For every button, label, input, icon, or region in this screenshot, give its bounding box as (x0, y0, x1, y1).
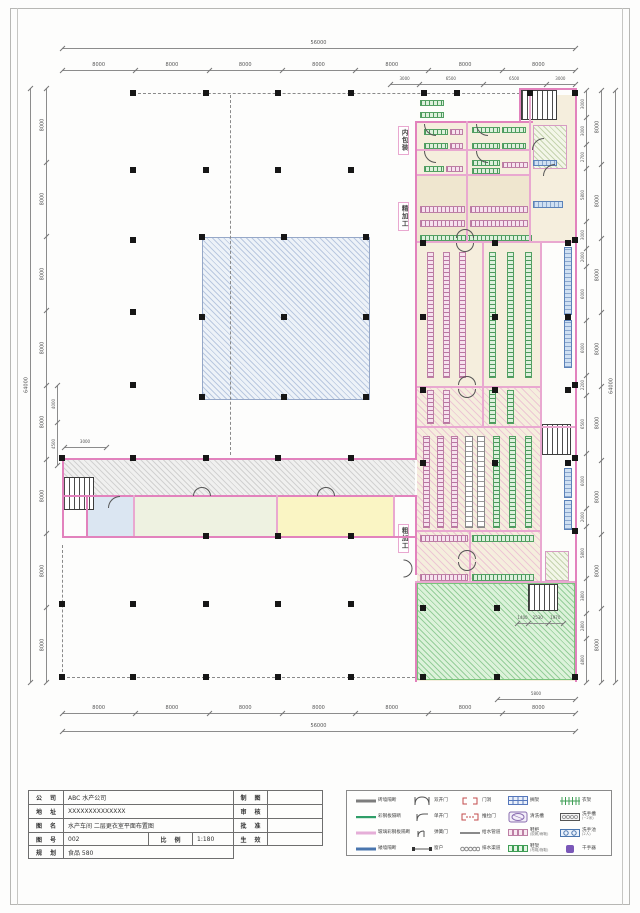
wall (519, 88, 521, 123)
door-leaf (456, 243, 465, 252)
column-marker (363, 394, 369, 400)
dimension-label: 4500 (52, 439, 56, 449)
sliding-door-icon (459, 811, 480, 822)
column-marker (572, 382, 578, 388)
door-double-swing (193, 487, 211, 496)
troughV (564, 247, 572, 315)
legend-label: 玻璃彩钢板隔断 (378, 830, 410, 836)
column-marker (420, 387, 426, 393)
legend-text: 鞋柜(胶靴/雨靴) (530, 828, 548, 837)
column-marker (275, 455, 281, 461)
shoe-cabinet-icon (507, 827, 528, 838)
dimension-line (30, 88, 31, 682)
wallt (415, 581, 575, 583)
dimension-label: 64000 (610, 378, 615, 394)
trough (533, 201, 563, 208)
dimension-tick (584, 679, 590, 685)
lockg (472, 535, 534, 542)
legend-text: 玻璃彩钢板隔断 (378, 830, 410, 836)
hand-trough-icon (559, 811, 580, 822)
column-marker (565, 460, 571, 466)
column-marker (420, 605, 426, 611)
legend-label: 砖墙隔断 (378, 798, 396, 804)
legend-text: 鞋架(布鞋/拖鞋) (530, 844, 548, 853)
approve-label: 批 准 (234, 819, 268, 833)
door-leaf (467, 562, 476, 571)
drawing-number-label: 图 号 (29, 833, 64, 846)
legend-label: 推拉门 (482, 814, 496, 820)
column-marker (572, 455, 578, 461)
water-pipe-icon (459, 827, 480, 838)
lockpv (459, 252, 466, 378)
lockw (465, 436, 473, 528)
dimension-line (62, 70, 575, 71)
lockp (470, 206, 528, 213)
dimension-label: 3000 (80, 440, 90, 444)
column-marker (420, 314, 426, 320)
dimension-label: 4800 (581, 655, 585, 665)
wallt (417, 386, 540, 388)
dimension-tick (573, 710, 579, 716)
dimension-tick (104, 444, 110, 450)
wallt (466, 121, 468, 243)
review-value (268, 805, 323, 819)
zone-label-rough-processing: 粗加工 (398, 524, 409, 553)
dimension-tick (573, 67, 579, 73)
legend-item: 鞋架(布鞋/拖鞋) (507, 842, 548, 855)
drawing-number-value: 002 (64, 833, 149, 846)
door-leaf (404, 569, 413, 578)
wallt (276, 495, 278, 536)
dimension-label: 8000 (596, 491, 601, 504)
legend-text: 弹簧门 (434, 830, 448, 836)
door-opening-icon (459, 795, 480, 806)
door-double-swing (458, 550, 476, 559)
dimension-tick (573, 696, 579, 702)
column-marker (130, 309, 136, 315)
dimension-label: 8000 (596, 565, 601, 578)
dimension-label: 3800 (581, 591, 585, 601)
wall (62, 536, 417, 538)
shoe-rack-icon (507, 843, 528, 854)
door-leaf (193, 487, 202, 496)
column-marker (275, 533, 281, 539)
dimension-line (586, 90, 587, 682)
double-door-icon (411, 795, 432, 806)
dimension-label: 8000 (385, 63, 398, 68)
column-marker (59, 455, 65, 461)
dimension-line (62, 48, 575, 49)
column-marker (565, 387, 571, 393)
lockgv (489, 390, 496, 424)
column-marker (275, 601, 281, 607)
dimension-label: 2200 (581, 380, 585, 390)
dimension-label: 8000 (459, 63, 472, 68)
column-marker (281, 314, 287, 320)
lockgv (493, 436, 500, 528)
column-marker (130, 90, 136, 96)
toilet-floor (278, 497, 393, 536)
lockp (446, 166, 463, 172)
title-block-signoff: 制 图 审 核 批 准 生 效 (233, 790, 323, 846)
dimension-label: 4000 (52, 399, 56, 409)
door-leaf (456, 229, 465, 238)
company-value: ABC 水产公司 (64, 791, 234, 805)
dimension-label: 8000 (41, 342, 46, 355)
door-leaf (467, 389, 476, 398)
legend-label: 给水管道 (482, 830, 500, 836)
legend-label: 干手器 (582, 846, 596, 852)
legend-item: 鞋柜(胶靴/雨靴) (507, 826, 548, 839)
column-marker (199, 314, 205, 320)
legend-text: 清洗槽 (530, 814, 544, 820)
lockgv (507, 252, 514, 378)
legend-item: 彩钢板隔断 (355, 810, 401, 823)
dimension-label: 8000 (312, 63, 325, 68)
dimension-label: 8000 (166, 706, 179, 711)
column-marker (130, 455, 136, 461)
utility-box (545, 551, 569, 581)
column-marker (130, 674, 136, 680)
dimension-label: 2800 (581, 621, 585, 631)
plan-value: 食品 580 (64, 846, 234, 859)
lockp (420, 206, 465, 213)
column-marker (130, 167, 136, 173)
legend-text: 推拉门 (482, 814, 496, 820)
dimension-label: 6500 (581, 419, 585, 429)
column-marker (130, 601, 136, 607)
legend-note: (胶靴/雨靴) (530, 833, 548, 837)
legend-label: 搁架 (530, 798, 539, 804)
column-marker (281, 394, 287, 400)
dimension-label: 8000 (41, 564, 46, 577)
legend-item: 衣架 (559, 794, 591, 807)
stair-mid (541, 424, 571, 455)
door-double-swing (458, 376, 476, 385)
lockpv (443, 390, 450, 424)
dimension-label: 8000 (532, 706, 545, 711)
troughV (564, 468, 572, 498)
dimension-line (62, 731, 575, 732)
column-marker (492, 240, 498, 246)
legend-item: 推拉门 (459, 810, 496, 823)
dimension-tick (573, 81, 579, 87)
legend: 砖墙隔断双开门门洞搁架衣架彩钢板隔断单开门推拉门清洗槽洗手槽(~2米)玻璃彩钢板… (346, 790, 612, 856)
legend-text: 彩钢板隔断 (378, 814, 401, 820)
dimension-label: 8000 (41, 119, 46, 132)
lockg (420, 100, 444, 106)
dimension-label: 6500 (509, 77, 519, 81)
drawing-sheet: 蓄水池 医务室 休息室 卫生间 洗衣房 内包装 精加工 粗加工 公一更 公二更 … (0, 0, 640, 913)
dimension-label: 8000 (459, 706, 472, 711)
column-marker (203, 533, 209, 539)
lockp (420, 220, 465, 227)
lockp (420, 574, 468, 581)
company-label: 公 司 (29, 791, 64, 805)
door-leaf (404, 560, 413, 569)
legend-text: 给水管道 (482, 830, 500, 836)
dimension-label: 3000 (400, 77, 410, 81)
dimension-label: 8000 (385, 706, 398, 711)
dimension-label: 6000 (581, 343, 585, 353)
corridor-floor (62, 460, 415, 495)
legend-text: 单开门 (434, 814, 448, 820)
dimension-label: 8000 (596, 417, 601, 430)
column-marker (421, 90, 427, 96)
column-marker (348, 674, 354, 680)
wall (86, 495, 88, 538)
lockpv (427, 252, 434, 378)
door-double-swing (458, 562, 476, 571)
legend-item: 玻璃彩钢板隔断 (355, 826, 410, 839)
column-marker (348, 90, 354, 96)
dimension-label: 56000 (311, 724, 327, 729)
troughV (564, 320, 572, 368)
dimension-label: 8000 (41, 267, 46, 280)
column-marker (494, 605, 500, 611)
door-leaf (458, 562, 467, 571)
dimension-label: 3000 (555, 77, 565, 81)
wash-sink-icon (507, 811, 528, 822)
stair-left (63, 477, 94, 510)
legend-text: 干手器 (582, 846, 596, 852)
legend-text: 门洞 (482, 798, 491, 804)
door-double-swing (458, 389, 476, 398)
legend-item: 干手器 (559, 842, 596, 855)
wall (62, 458, 417, 460)
dimension-label: 8000 (166, 63, 179, 68)
column-marker (454, 90, 460, 96)
draft-value (268, 791, 323, 805)
dimension-line (497, 699, 575, 700)
legend-note: (2人) (582, 833, 596, 837)
column-marker (572, 90, 578, 96)
legend-text: 双开门 (434, 798, 448, 804)
column-marker (420, 674, 426, 680)
lockw (477, 436, 485, 528)
door-double-swing (404, 560, 413, 578)
legend-note: (~2米) (582, 817, 596, 821)
dimension-line (615, 90, 616, 682)
lockpv (427, 390, 434, 424)
lockp (502, 162, 528, 168)
lockgv (525, 436, 532, 528)
dimension-label: 8000 (41, 193, 46, 206)
dimension-label: 2000 (581, 252, 585, 262)
column-marker (348, 533, 354, 539)
lockg (502, 127, 526, 133)
legend-item: 排水渠道 (459, 842, 500, 855)
wallt (417, 530, 540, 532)
legend-label: 门洞 (482, 798, 491, 804)
dimension-label: 2530 (533, 616, 543, 620)
edge-dash-bottom (62, 677, 415, 678)
legend-text: 衣架 (582, 798, 591, 804)
column-marker (494, 674, 500, 680)
lockg (472, 574, 534, 581)
dimension-label: 8000 (92, 63, 105, 68)
dimension-tick (55, 462, 61, 468)
drain-channel-icon (459, 843, 480, 854)
legend-text: 窗户 (434, 846, 443, 852)
wallt (417, 426, 575, 428)
column-marker (572, 237, 578, 243)
effective-value (268, 833, 323, 846)
dimension-label: 8000 (596, 121, 601, 134)
column-marker (199, 394, 205, 400)
column-marker (565, 314, 571, 320)
wall (415, 583, 417, 682)
door-leaf (458, 389, 467, 398)
column-marker (492, 314, 498, 320)
dimension-label: 2000 (581, 512, 585, 522)
dimension-label: 5800 (581, 547, 585, 557)
dimension-label: 3000 (581, 230, 585, 240)
column-marker (565, 240, 571, 246)
legend-item: 洗手池(2人) (559, 826, 596, 839)
door-leaf (317, 487, 326, 496)
column-marker (572, 674, 578, 680)
dimension-label: 8000 (532, 63, 545, 68)
column-marker (527, 90, 533, 96)
door-leaf (202, 487, 211, 496)
column-marker (59, 674, 65, 680)
lockp (420, 535, 468, 542)
stair-bottom (528, 584, 558, 611)
legend-label: 双开门 (434, 798, 448, 804)
wallt (482, 243, 484, 426)
dimension-line (62, 713, 575, 714)
door-double-swing (456, 229, 474, 238)
zone-label-fine-processing: 精加工 (398, 202, 409, 231)
column-marker (203, 90, 209, 96)
dimension-label: 8000 (41, 416, 46, 429)
lockg (424, 166, 444, 172)
plan-label: 规 划 (29, 846, 64, 859)
legend-item: 双开门 (411, 794, 448, 807)
column-marker (420, 240, 426, 246)
steel-wall-icon (355, 811, 376, 822)
column-marker (59, 601, 65, 607)
door-leaf (458, 376, 467, 385)
review-label: 审 核 (234, 805, 268, 819)
legend-label: 衣架 (582, 798, 591, 804)
column-marker (363, 234, 369, 240)
door-leaf (326, 487, 335, 496)
legend-label: 矮墙隔断 (378, 846, 396, 852)
door-leaf (467, 376, 476, 385)
dimension-tick (573, 45, 579, 51)
dimension-label: 6000 (581, 476, 585, 486)
legend-label: 清洗槽 (530, 814, 544, 820)
dimension-tick (599, 679, 605, 685)
lockgv (509, 436, 516, 528)
column-marker (348, 601, 354, 607)
dimension-label: 8000 (596, 343, 601, 356)
dimension-tick (44, 679, 50, 685)
lockpv (443, 252, 450, 378)
column-marker (492, 387, 498, 393)
legend-item: 矮墙隔断 (355, 842, 396, 855)
legend-label: 排水渠道 (482, 846, 500, 852)
dimension-label: 3000 (581, 98, 585, 108)
title-block: 公 司 ABC 水产公司 地 址 XXXXXXXXXXXXXX 图 名 水产车间… (28, 790, 234, 859)
drawing-name-label: 图 名 (29, 819, 64, 833)
dimension-label: 8000 (239, 706, 252, 711)
column-marker (363, 314, 369, 320)
wallt (529, 93, 531, 243)
column-marker (572, 528, 578, 534)
troughV (564, 500, 572, 530)
wallt (417, 174, 531, 176)
column-marker (275, 90, 281, 96)
draft-label: 制 图 (234, 791, 268, 805)
door-leaf (465, 243, 474, 252)
legend-text: 搁架 (530, 798, 539, 804)
legend-label: 单开门 (434, 814, 448, 820)
legend-text: 矮墙隔断 (378, 846, 396, 852)
legend-label: 窗户 (434, 846, 443, 852)
column-marker (203, 601, 209, 607)
shelf-grid-icon (507, 795, 528, 806)
dimension-label: 5800 (581, 190, 585, 200)
dimension-label: 64000 (25, 377, 30, 393)
legend-item: 窗户 (411, 842, 443, 855)
glass-wall-icon (355, 827, 376, 838)
scale-value: 1:180 (193, 833, 234, 846)
lockgv (525, 252, 532, 378)
dimension-label: 56000 (311, 41, 327, 46)
column-marker (492, 460, 498, 466)
door-leaf (467, 550, 476, 559)
lockpv (451, 436, 458, 528)
dimension-tick (613, 679, 619, 685)
column-marker (130, 382, 136, 388)
wall (62, 458, 64, 538)
dimension-label: 8000 (92, 706, 105, 711)
legend-text: 洗手池(2人) (582, 828, 596, 837)
dimension-line (64, 447, 106, 448)
lockpv (423, 436, 430, 528)
wallt (133, 495, 135, 536)
column-marker (203, 674, 209, 680)
dimension-tick (573, 728, 579, 734)
drawing-name-value: 水产车间 二层更衣室平面布置图 (64, 819, 234, 833)
column-marker (203, 455, 209, 461)
lockpv (437, 436, 444, 528)
legend-note: (布鞋/拖鞋) (530, 849, 548, 853)
lockp (470, 220, 528, 227)
dimension-label: 1400 (517, 616, 527, 620)
column-marker (275, 167, 281, 173)
dimension-label: 8000 (596, 195, 601, 208)
legend-item: 单开门 (411, 810, 448, 823)
column-marker (348, 167, 354, 173)
column-marker (203, 167, 209, 173)
door-double-swing (317, 487, 335, 496)
dimension-label: 8000 (41, 490, 46, 503)
floor-plan: 蓄水池 医务室 休息室 卫生间 洗衣房 内包装 精加工 粗加工 公一更 公二更 … (0, 0, 640, 780)
dimension-line (517, 623, 563, 624)
dimension-label: 8000 (596, 639, 601, 652)
wall (415, 121, 533, 123)
grid-dash-top (133, 93, 530, 94)
approve-value (268, 819, 323, 833)
rest-floor (135, 497, 276, 536)
legend-item: 门洞 (459, 794, 491, 807)
address-value: XXXXXXXXXXXXXX (64, 805, 234, 819)
legend-label: 弹簧门 (434, 830, 448, 836)
